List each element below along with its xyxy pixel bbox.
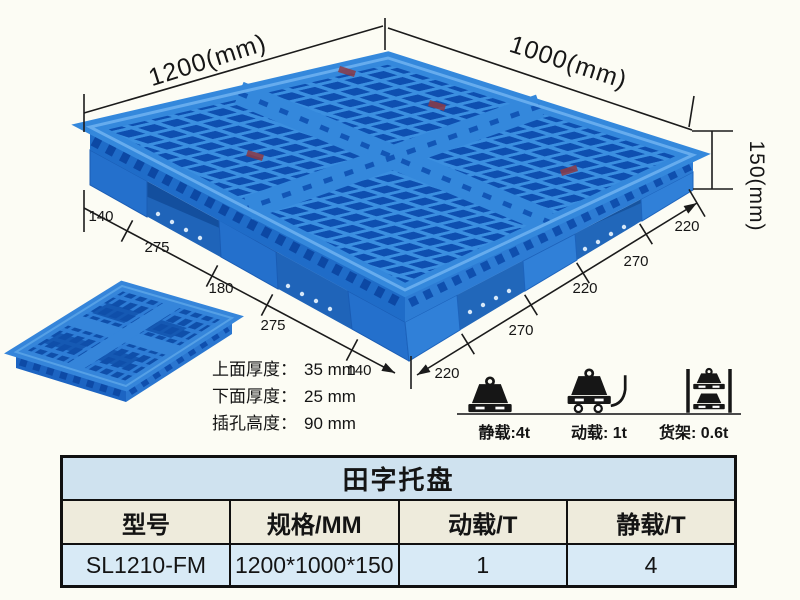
static-load-cell [461,376,519,413]
col-header-dynamic-load: 动载/T [399,500,568,544]
arrowhead [684,203,697,214]
spec-title-row: 田字托盘 [62,457,736,501]
note-label: 下面厚度： [212,387,297,406]
dim-label-150: 150(mm) [745,140,768,231]
pallet-spec-sheet: { "colors": { "pallet_blue": "#2f82da", … [0,0,800,600]
rack-load-icon [681,367,737,413]
note-label: 上面厚度： [212,360,297,379]
spec-table-wrap: 田字托盘 型号 规格/MM 动载/T 静载/T SL1210-FM 1200*1… [60,455,737,588]
tick [121,220,132,241]
note-bottom-thickness: 下面厚度：25 mm [212,383,356,410]
static-load-label: 静载:4t [457,419,552,443]
rack-load-cell [681,367,737,413]
static-load-icon [461,376,519,413]
spec-header-row: 型号 规格/MM 动载/T 静载/T [62,500,736,544]
col-header-static-load: 静载/T [567,500,736,544]
dim-label-1200: 1200(mm) [145,29,270,92]
spec-table-title: 田字托盘 [62,457,736,501]
dim-right-3: 220 [572,280,597,297]
cell-model: SL1210-FM [62,544,231,587]
cell-size: 1200*1000*150 [230,544,399,587]
load-labels-row: 静载:4t 动载: 1t 货架: 0.6t [457,419,741,443]
dynamic-load-label: 动载: 1t [552,419,647,443]
col-header-size: 规格/MM [230,500,399,544]
note-fork-height: 插孔高度：90 mm [212,410,356,437]
dim-right-2: 270 [508,322,533,339]
dim-left-4: 275 [260,317,285,334]
col-header-model: 型号 [62,500,231,544]
dim-left-1: 140 [88,208,113,225]
small-pallet [16,286,232,402]
tick [261,294,272,315]
dim-right-5: 220 [674,218,699,235]
note-value: 25 mm [304,387,356,406]
note-value: 90 mm [304,414,356,433]
dim-left-2: 275 [144,239,169,256]
dim-right-1: 220 [434,365,459,382]
dynamic-load-cell [561,368,639,413]
tick [462,334,475,354]
arrowhead [417,364,431,375]
rack-load-label: 货架: 0.6t [646,419,741,443]
note-value: 35 mm [304,360,356,379]
note-label: 插孔高度： [212,414,297,433]
spec-data-row: SL1210-FM 1200*1000*150 1 4 [62,544,736,587]
thickness-notes: 上面厚度：35 mm 下面厚度：25 mm 插孔高度：90 mm [212,356,356,437]
tick [689,96,694,127]
dim-right-4: 270 [623,253,648,270]
cell-static-load: 4 [567,544,736,587]
cell-dynamic-load: 1 [399,544,568,587]
tick [525,295,538,315]
arrowhead [381,363,395,373]
load-icons-row [457,367,741,415]
note-top-thickness: 上面厚度：35 mm [212,356,356,383]
spec-table: 田字托盘 型号 规格/MM 动载/T 静载/T SL1210-FM 1200*1… [60,455,737,588]
dynamic-load-icon [561,368,639,413]
dim-label-1000: 1000(mm) [506,30,631,94]
tick [640,224,653,244]
load-ratings: 静载:4t 动载: 1t 货架: 0.6t [457,367,741,443]
dim-left-3: 180 [208,280,233,297]
